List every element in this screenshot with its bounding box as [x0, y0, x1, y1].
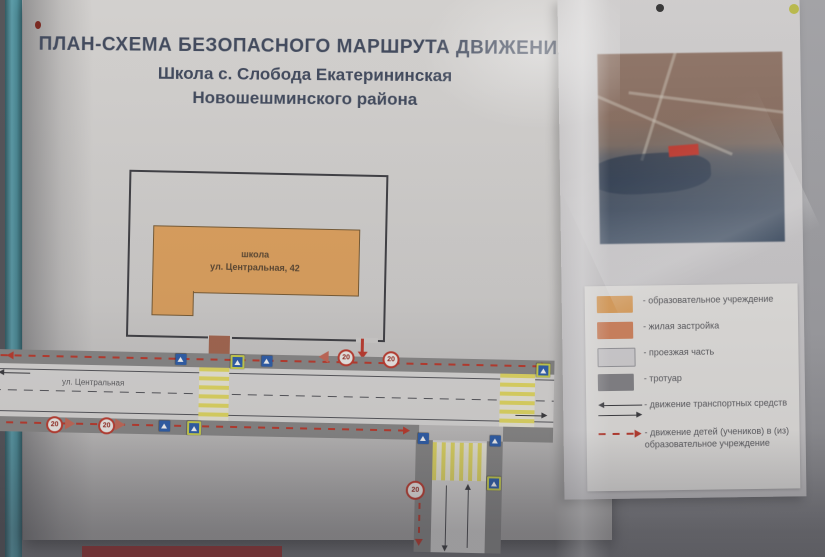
school-gate-route-arrow	[361, 339, 364, 352]
crosswalk-side-street	[432, 442, 487, 481]
legend-label: - образовательное учреждение	[643, 293, 791, 307]
aerial-road	[640, 52, 678, 161]
residential-swatch	[597, 322, 633, 340]
crosswalk-west	[198, 367, 229, 421]
route-arrowhead-left	[6, 351, 13, 359]
school-building-wing	[151, 290, 194, 316]
route-arrowhead-down	[415, 539, 423, 546]
street-name-label: ул. Центральная	[62, 377, 125, 387]
pinned-legend-sheet: - образовательное учреждение - жилая зас…	[558, 0, 807, 500]
school-gate-path	[209, 335, 230, 353]
poster-title: ПЛАН-СХЕМА БЕЗОПАСНОГО МАРШРУТА ДВИЖЕНИЯ…	[30, 34, 581, 112]
legend-label: - движение транспортных средств	[644, 397, 792, 411]
children-route-arrow-icon	[599, 430, 643, 431]
legend-label: - проезжая часть	[643, 345, 791, 359]
legend-panel: - образовательное учреждение - жилая зас…	[585, 283, 801, 491]
legend-row: - тротуар	[586, 371, 799, 374]
route-direction-triangle-right	[65, 417, 75, 429]
push-pin	[789, 4, 799, 14]
legend-label: - жилая застройка	[643, 319, 791, 333]
legend-label: - движение детей (учеников) в (из) образ…	[645, 425, 793, 450]
vehicle-arrow-left	[0, 369, 4, 375]
pedestrian-crossing-sign	[261, 356, 272, 367]
vehicle-arrow-right	[541, 412, 547, 418]
foreground-red-edge	[82, 546, 282, 557]
pedestrian-crossing-sign	[487, 476, 501, 490]
pedestrian-crossing-sign	[230, 355, 244, 369]
education-building-swatch	[597, 296, 633, 314]
vehicle-traffic-arrows-icon	[598, 403, 642, 404]
roadway-swatch	[597, 348, 635, 368]
sidewalk-side-street-east	[485, 441, 503, 553]
pedestrian-crossing-sign	[187, 421, 201, 435]
legend-row: - движение детей (учеников) в (из) образ…	[587, 425, 800, 428]
legend-label: - тротуар	[644, 371, 792, 385]
pedestrian-crossing-sign	[418, 433, 429, 444]
vehicle-arrow-down	[442, 545, 448, 551]
photographed-safety-route-poster: ПЛАН-СХЕМА БЕЗОПАСНОГО МАРШРУТА ДВИЖЕНИЯ…	[0, 0, 825, 557]
push-pin	[656, 4, 664, 12]
pedestrian-crossing-sign	[490, 435, 501, 446]
legend-row: - проезжая часть	[585, 345, 798, 348]
push-pin	[35, 21, 41, 29]
aerial-dark-area	[597, 149, 712, 197]
pedestrian-crossing-sign	[159, 420, 170, 431]
sidewalk-swatch	[598, 374, 634, 392]
legend-row: - жилая застройка	[585, 319, 798, 322]
crosswalk-east	[499, 374, 535, 428]
title-line-2: Школа с. Слобода Екатерининская	[30, 63, 580, 88]
school-building-label: школа ул. Центральная, 42	[152, 246, 358, 276]
legend-row: - образовательное учреждение	[585, 293, 798, 296]
legend-row: - движение транспортных средств	[586, 397, 799, 400]
route-direction-triangle-right	[115, 419, 125, 431]
fence-gate-gap	[356, 338, 378, 343]
vehicle-arrow-up	[465, 484, 471, 490]
route-arrowhead-right	[403, 427, 410, 435]
route-direction-triangle-left	[318, 351, 328, 363]
pedestrian-crossing-sign	[536, 363, 550, 377]
pedestrian-crossing-sign	[175, 354, 186, 365]
aerial-road	[629, 91, 785, 117]
title-line-1: ПЛАН-СХЕМА БЕЗОПАСНОГО МАРШРУТА ДВИЖЕНИЯ	[30, 34, 580, 61]
sidewalk-south-east	[503, 427, 553, 443]
aerial-satellite-photo	[597, 52, 785, 245]
